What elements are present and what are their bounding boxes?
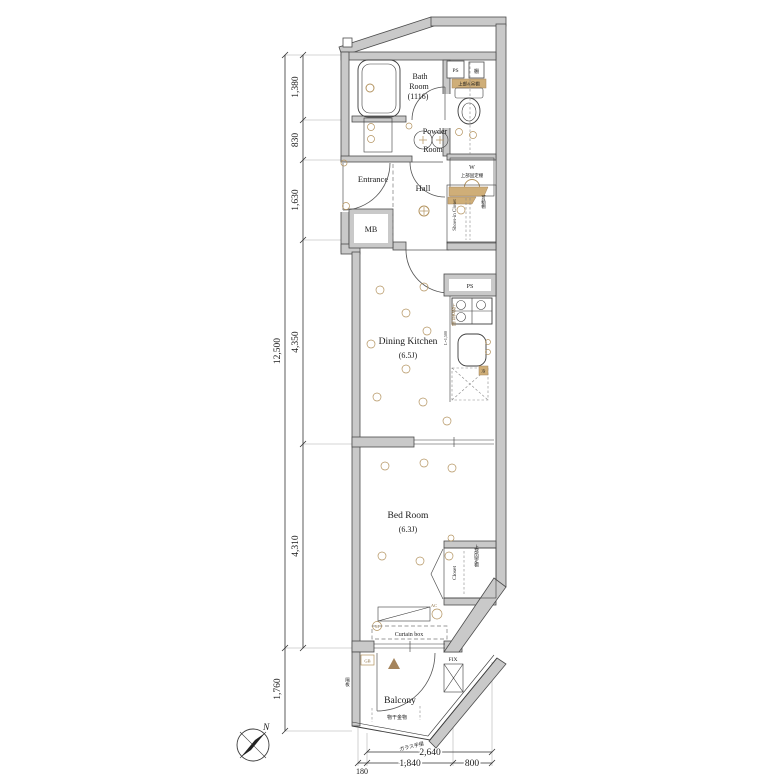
closet-label: Closet bbox=[452, 566, 458, 581]
downlight bbox=[423, 327, 431, 335]
powder-label-2: Room bbox=[423, 145, 443, 154]
hall-dk-door-arc bbox=[406, 250, 449, 293]
washer-label: W bbox=[469, 165, 475, 171]
burner-icon bbox=[457, 301, 466, 310]
ac-label: AC bbox=[431, 603, 437, 608]
dk-label: Dining Kitchen bbox=[379, 337, 438, 347]
bed-room: Bed Room (6.3J) M AC Curtain box bbox=[372, 459, 456, 652]
downlight bbox=[402, 365, 410, 373]
toilet-area: PS 棚 上部&吊棚 bbox=[447, 61, 486, 154]
mb-label: MB bbox=[365, 225, 377, 234]
m-label: M bbox=[375, 624, 379, 629]
ps-upper-label: PS bbox=[452, 68, 458, 74]
downlight bbox=[448, 464, 456, 472]
closet-shelf-label: 上部固定棚 bbox=[474, 544, 480, 569]
shoes-closet-label: Shoes-in Closet bbox=[453, 199, 458, 231]
balcony-partition-wall bbox=[352, 652, 360, 726]
toilet-accessory-icon bbox=[456, 129, 463, 136]
north-label: N bbox=[262, 723, 270, 733]
closet-door-fold bbox=[431, 549, 443, 599]
entrance-label: Entrance bbox=[358, 174, 388, 184]
diagonal-wall bbox=[444, 578, 506, 652]
washer-shelf-label: 上部固定棚 bbox=[461, 172, 484, 179]
closet-light-icon bbox=[448, 535, 454, 541]
entrance-door-opening bbox=[340, 162, 350, 212]
bath-label-1: Bath bbox=[412, 72, 427, 81]
ac-unit-icon bbox=[432, 609, 442, 619]
powder-entrance-divider bbox=[341, 156, 412, 162]
toilet-paper-icon bbox=[470, 132, 477, 139]
floor-plan-page: 12,500 1,760 1,380 830 1,630 4,350 4,310… bbox=[0, 0, 783, 779]
downlight bbox=[445, 552, 453, 560]
dim-v5: 4,310 bbox=[291, 535, 301, 557]
powder-light-icon bbox=[406, 123, 412, 129]
downlight bbox=[419, 398, 427, 406]
right-wall bbox=[496, 24, 506, 587]
dk-bed-wall bbox=[352, 437, 414, 447]
dim-vertical-total: 12,500 bbox=[273, 338, 283, 364]
bathtub-drain-icon bbox=[366, 84, 374, 92]
closet-top-wall bbox=[444, 541, 496, 548]
monohoshi-label: 物干金物 bbox=[387, 714, 407, 721]
downlight bbox=[420, 459, 428, 467]
toilet-bowl-inner bbox=[462, 103, 476, 121]
wall-notch bbox=[343, 38, 352, 47]
balcony-label: Balcony bbox=[384, 696, 416, 706]
dim-v2: 830 bbox=[291, 133, 301, 148]
toilet-laundry-divider bbox=[447, 154, 496, 160]
balcony: GB FIX Balcony 物干金物 ガラス手摺 隔板 bbox=[345, 653, 497, 753]
kitchen: PS L=1,500 上部吊戸棚 冷 bbox=[443, 274, 496, 402]
dim-v4: 4,350 bbox=[291, 331, 301, 353]
fix-label: FIX bbox=[449, 657, 458, 663]
compass: N bbox=[237, 723, 270, 761]
toilet-tank bbox=[455, 88, 483, 98]
left-wall-lower bbox=[352, 252, 360, 652]
kakuita-label: 隔板 bbox=[345, 676, 351, 688]
bath-size-label: (1116) bbox=[408, 92, 429, 101]
curtain-box-label: Curtain box bbox=[395, 632, 424, 638]
downlight bbox=[402, 309, 410, 317]
dim-v3: 1,630 bbox=[291, 189, 301, 211]
dim-horizontal-total: 2,640 bbox=[419, 748, 441, 758]
dim-h1: 180 bbox=[356, 767, 368, 776]
evacuation-marker-icon bbox=[388, 658, 400, 669]
downlight bbox=[373, 393, 381, 401]
bath-fixture-icon2 bbox=[368, 136, 375, 143]
dk-size-label: (6.5J) bbox=[399, 351, 418, 360]
downlight bbox=[367, 340, 375, 348]
left-wall-upper bbox=[341, 52, 349, 252]
shoes-closet: Shoes-in Closet 可動棚 bbox=[447, 185, 496, 243]
bath-label-2: Room bbox=[409, 82, 429, 91]
floor-plan-canvas: 12,500 1,760 1,380 830 1,630 4,350 4,310… bbox=[0, 0, 783, 779]
top-diagonal-wall bbox=[339, 17, 434, 56]
downlight bbox=[378, 552, 386, 560]
downlight bbox=[443, 417, 451, 425]
shoes-shelf-label: 可動棚 bbox=[481, 195, 487, 210]
bed-label: Bed Room bbox=[388, 511, 430, 521]
bed-size-label: (6.3J) bbox=[399, 525, 418, 534]
kitchen-shelf-label: 上部吊戸棚 bbox=[451, 303, 457, 328]
shoes-closet-light-icon bbox=[457, 206, 465, 214]
laundry-area: W 上部固定棚 bbox=[448, 158, 494, 204]
bed-bottom-left-pier bbox=[352, 641, 374, 652]
bathtub-inner bbox=[362, 64, 396, 113]
kitchen-shelf-length: L=1,500 bbox=[443, 331, 449, 345]
downlight bbox=[416, 557, 424, 565]
shelf-label: 棚 bbox=[474, 68, 479, 75]
fridge-label: 冷 bbox=[482, 368, 486, 374]
top-wall bbox=[431, 17, 506, 26]
toilet-bowl bbox=[458, 98, 480, 124]
dim-balcony-depth: 1,760 bbox=[273, 678, 283, 700]
toilet-door-opening bbox=[442, 94, 451, 128]
dimension-lines-left: 12,500 1,760 1,380 830 1,630 4,350 4,310 bbox=[273, 52, 352, 734]
downlight bbox=[376, 286, 384, 294]
dining-kitchen: Dining Kitchen (6.5J) bbox=[367, 283, 494, 447]
dim-h2: 1,840 bbox=[399, 759, 421, 769]
dim-v1: 1,380 bbox=[291, 76, 301, 98]
burner-icon3 bbox=[457, 313, 466, 322]
hall-wall-stub bbox=[393, 242, 406, 250]
ps-kitchen-label: PS bbox=[467, 284, 474, 290]
entrance-door-arc bbox=[343, 163, 390, 210]
dim-h3: 800 bbox=[465, 759, 480, 769]
sink bbox=[458, 334, 486, 366]
bathtub bbox=[358, 60, 400, 117]
bath-counter bbox=[364, 118, 392, 152]
toilet-shelf-label: 上部&吊棚 bbox=[458, 81, 480, 88]
hall-label: Hall bbox=[416, 183, 431, 193]
neighbor-diagonal-band bbox=[429, 658, 506, 748]
burner-icon2 bbox=[477, 301, 486, 310]
bath-fixture-icon bbox=[368, 124, 375, 131]
gb-label: GB bbox=[364, 659, 370, 664]
ceiling-wall bbox=[341, 52, 496, 60]
downlight bbox=[381, 462, 389, 470]
